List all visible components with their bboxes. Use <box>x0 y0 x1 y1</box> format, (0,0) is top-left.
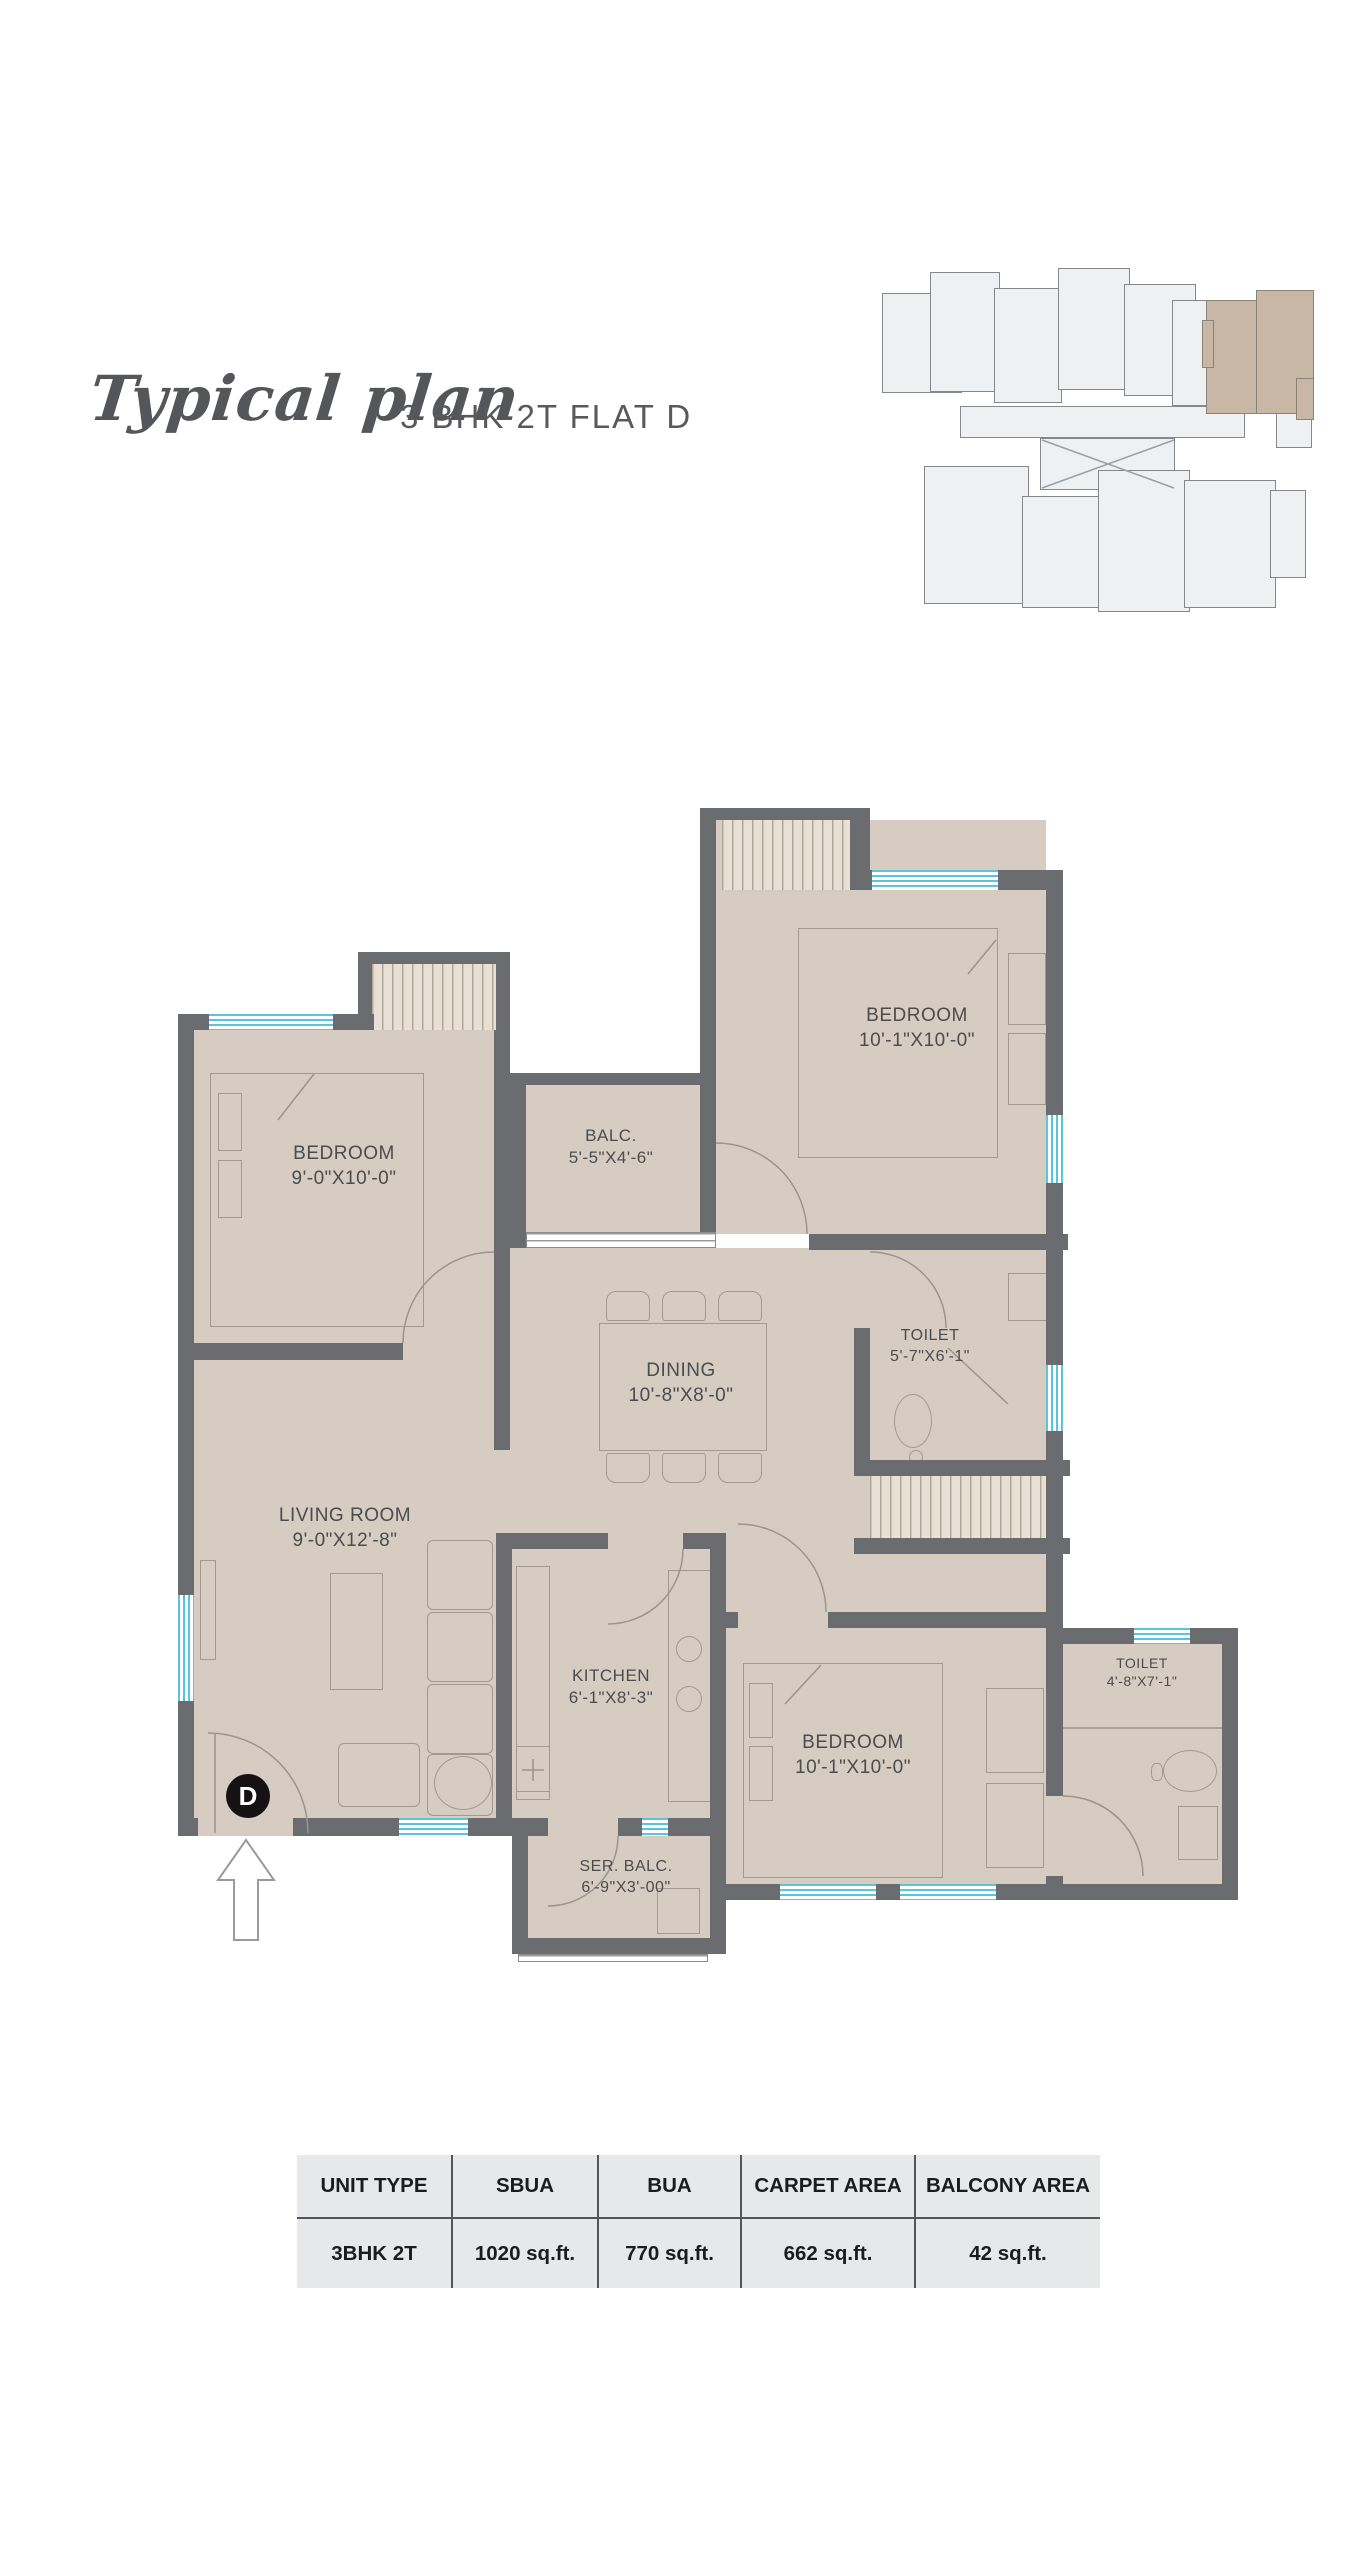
table-header-unit-type: UNIT TYPE <box>297 2155 453 2219</box>
room-label-bedroom-left: BEDROOM9'-0"X10'-0" <box>234 1141 454 1191</box>
room-label-kitchen: KITCHEN6'-1"X8'-3" <box>521 1665 701 1710</box>
room-label-balcony: BALC.5'-5"X4'-6" <box>521 1125 701 1170</box>
room-label-service-balcony: SER. BALC.6'-9"X3'-00" <box>536 1856 716 1898</box>
room-label-living-room: LIVING ROOM9'-0"X12'-8" <box>235 1503 455 1553</box>
room-label-toilet-1: TOILET5'-7"X6'-1" <box>850 1325 1010 1367</box>
page-title-subtitle: 3 BHK 2T FLAT D <box>400 398 692 436</box>
room-label-bedroom-bottom: BEDROOM10'-1"X10'-0" <box>743 1730 963 1780</box>
table-cell-unit-type: 3BHK 2T <box>297 2219 453 2288</box>
unit-d-marker: D <box>226 1774 270 1818</box>
table-cell-carpet-area: 662 sq.ft. <box>742 2219 916 2288</box>
key-plan <box>872 258 1332 643</box>
table-header-bua: BUA <box>599 2155 742 2219</box>
table-cell-sbua: 1020 sq.ft. <box>453 2219 599 2288</box>
room-label-toilet-2: TOILET4'-8"X7'-1" <box>1062 1654 1222 1691</box>
area-table: UNIT TYPE SBUA BUA CARPET AREA BALCONY A… <box>297 2155 1100 2288</box>
entry-arrow-icon <box>218 1840 274 1940</box>
table-header-sbua: SBUA <box>453 2155 599 2219</box>
table-cell-balcony-area: 42 sq.ft. <box>916 2219 1100 2288</box>
room-label-dining: DINING10'-8"X8'-0" <box>591 1358 771 1408</box>
room-label-bedroom-top: BEDROOM10'-1"X10'-0" <box>807 1003 1027 1053</box>
key-plan-stair-cross-icon <box>872 258 1332 643</box>
table-header-balcony-area: BALCONY AREA <box>916 2155 1100 2219</box>
floor-plan: BEDROOM9'-0"X10'-0" BALC.5'-5"X4'-6" BED… <box>178 788 1240 1973</box>
table-cell-bua: 770 sq.ft. <box>599 2219 742 2288</box>
table-header-carpet-area: CARPET AREA <box>742 2155 916 2219</box>
page: Typical plan 3 BHK 2T FLAT D BEDROOM9'-0… <box>0 0 1349 2560</box>
